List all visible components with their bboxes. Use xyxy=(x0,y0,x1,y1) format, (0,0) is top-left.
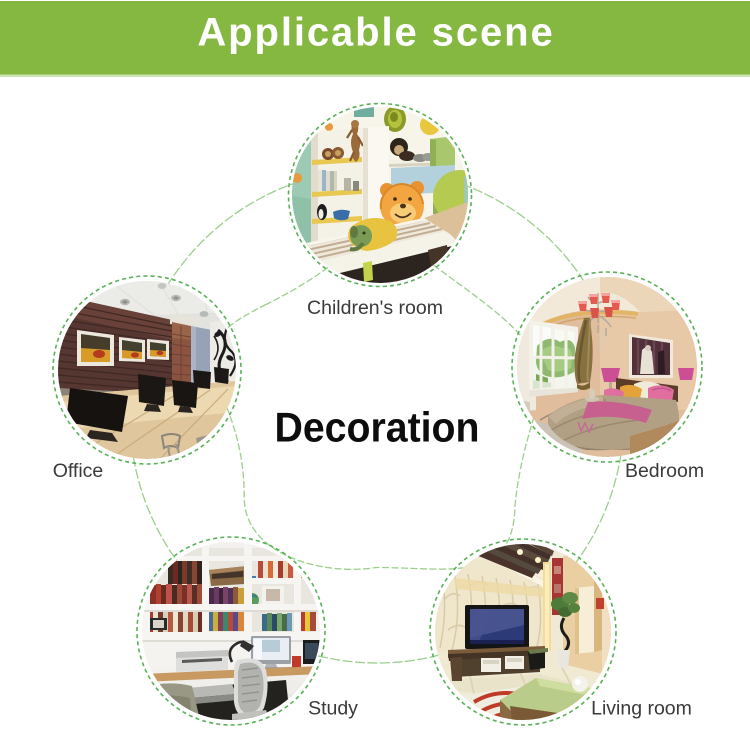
svg-text:Office: Office xyxy=(53,460,104,482)
svg-text:Bedroom: Bedroom xyxy=(625,460,704,482)
svg-text:Decoration: Decoration xyxy=(275,404,480,451)
svg-text:Living room: Living room xyxy=(591,698,692,720)
svg-text:Children's room: Children's room xyxy=(307,297,443,319)
svg-text:Applicable scene: Applicable scene xyxy=(197,11,554,55)
svg-text:Study: Study xyxy=(308,698,358,720)
